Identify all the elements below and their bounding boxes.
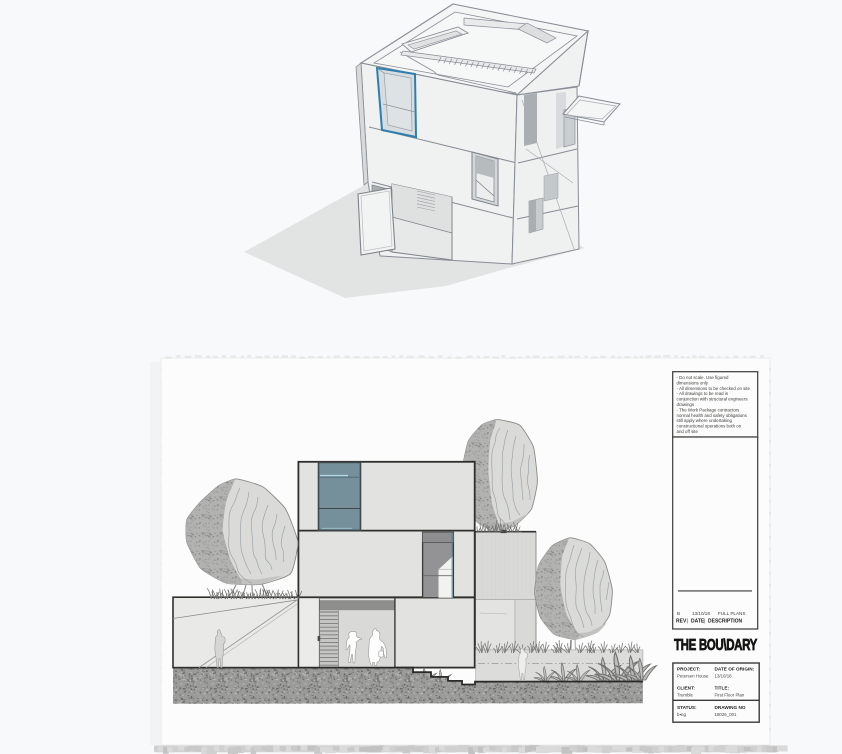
- svg-text:Petersen House: Petersen House: [677, 673, 709, 678]
- svg-text:FULL PLANS: FULL PLANS: [718, 611, 745, 616]
- svg-text:- All dimensions to be checked: - All dimensions to be checked on site: [677, 386, 751, 391]
- svg-text:First Floor Plan: First Floor Plan: [715, 692, 745, 697]
- svg-text:PROJECT:: PROJECT:: [677, 666, 701, 671]
- svg-text:13/10/18: 13/10/18: [692, 611, 710, 616]
- svg-text:- Do not scale. Use figured: - Do not scale. Use figured: [677, 375, 730, 380]
- svg-text:DESCRIPTION: DESCRIPTION: [708, 619, 743, 625]
- svg-text:conjunction with structural en: conjunction with structural engineers: [677, 397, 749, 402]
- svg-text:B: B: [677, 611, 680, 616]
- svg-text:CLIENT:: CLIENT:: [677, 685, 695, 690]
- svg-text:Tremble: Tremble: [677, 692, 693, 697]
- svg-text:- The Work Package contractors: - The Work Package contractors: [677, 407, 741, 412]
- svg-text:normal health and safety oblig: normal health and safety obligations: [677, 413, 748, 418]
- svg-text:- All drawings to be read in: - All drawings to be read in: [677, 391, 729, 396]
- svg-text:18026_001: 18026_001: [715, 712, 738, 717]
- svg-text:THE BOU\DARY: THE BOU\DARY: [674, 637, 758, 654]
- svg-text:DATE OF ORIGIN:: DATE OF ORIGIN:: [715, 666, 755, 671]
- svg-text:and off site: and off site: [677, 429, 699, 434]
- svg-text:STATUS:: STATUS:: [677, 705, 697, 710]
- svg-text:dimensions only: dimensions only: [677, 380, 709, 385]
- svg-text:constructional operations both: constructional operations both on: [677, 424, 742, 429]
- svg-text:b▪ng: b▪ng: [677, 712, 686, 717]
- svg-text:drawings: drawings: [677, 402, 695, 407]
- svg-text:DRAWING NO: DRAWING NO: [715, 705, 746, 710]
- svg-text:REV: REV: [676, 619, 687, 625]
- svg-text:|: |: [704, 619, 705, 625]
- svg-text:13/10/18: 13/10/18: [715, 673, 733, 678]
- svg-text:TITLE:: TITLE:: [715, 685, 730, 690]
- svg-text:|: |: [687, 619, 688, 625]
- svg-text:still apply where undertaking: still apply where undertaking: [677, 418, 733, 423]
